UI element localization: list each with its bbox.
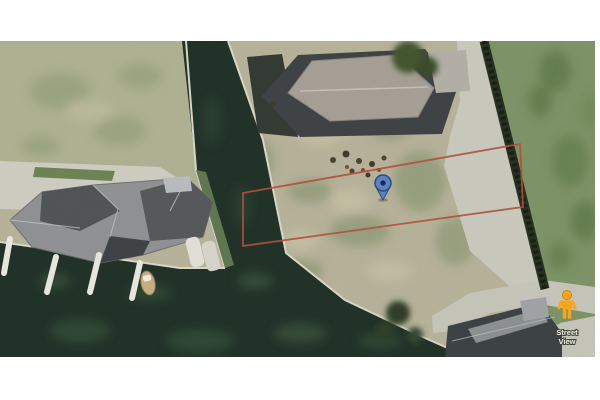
- aerial-map-view[interactable]: Street View: [0, 41, 595, 357]
- satellite-map-screenshot: Street View: [0, 0, 600, 400]
- letterbox-top: [0, 0, 600, 41]
- photo-grain: [0, 41, 595, 357]
- letterbox-bottom: [0, 357, 600, 400]
